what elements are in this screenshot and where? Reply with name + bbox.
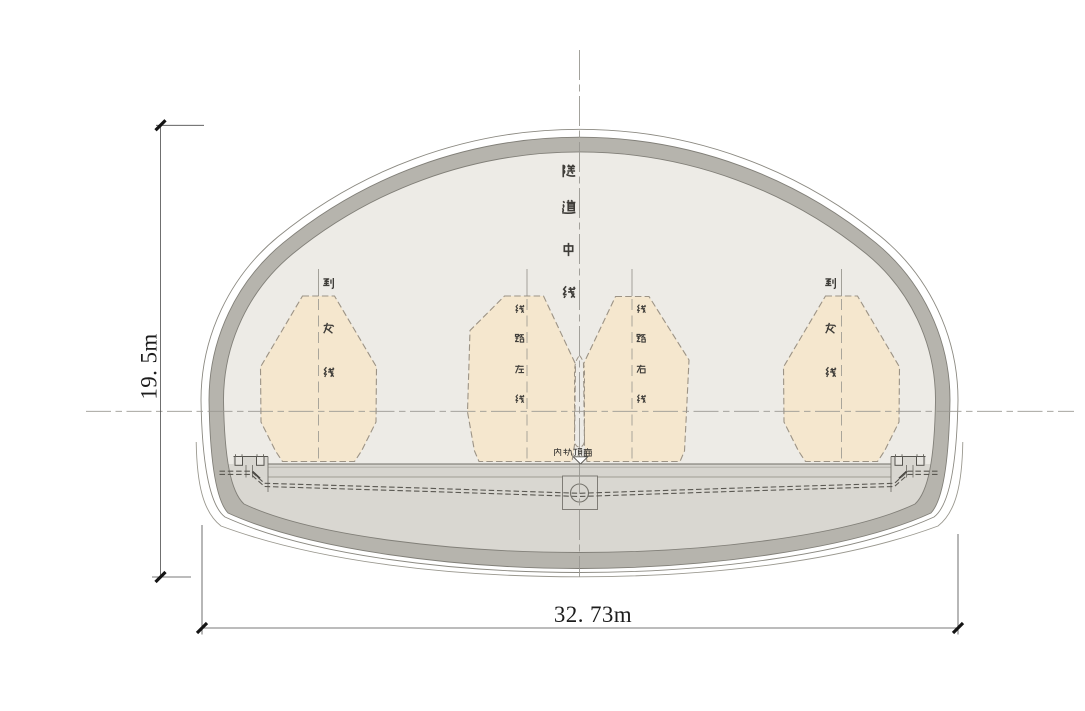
svg-text:32. 73m: 32. 73m <box>554 602 632 627</box>
svg-text:19. 5m: 19. 5m <box>137 333 162 399</box>
